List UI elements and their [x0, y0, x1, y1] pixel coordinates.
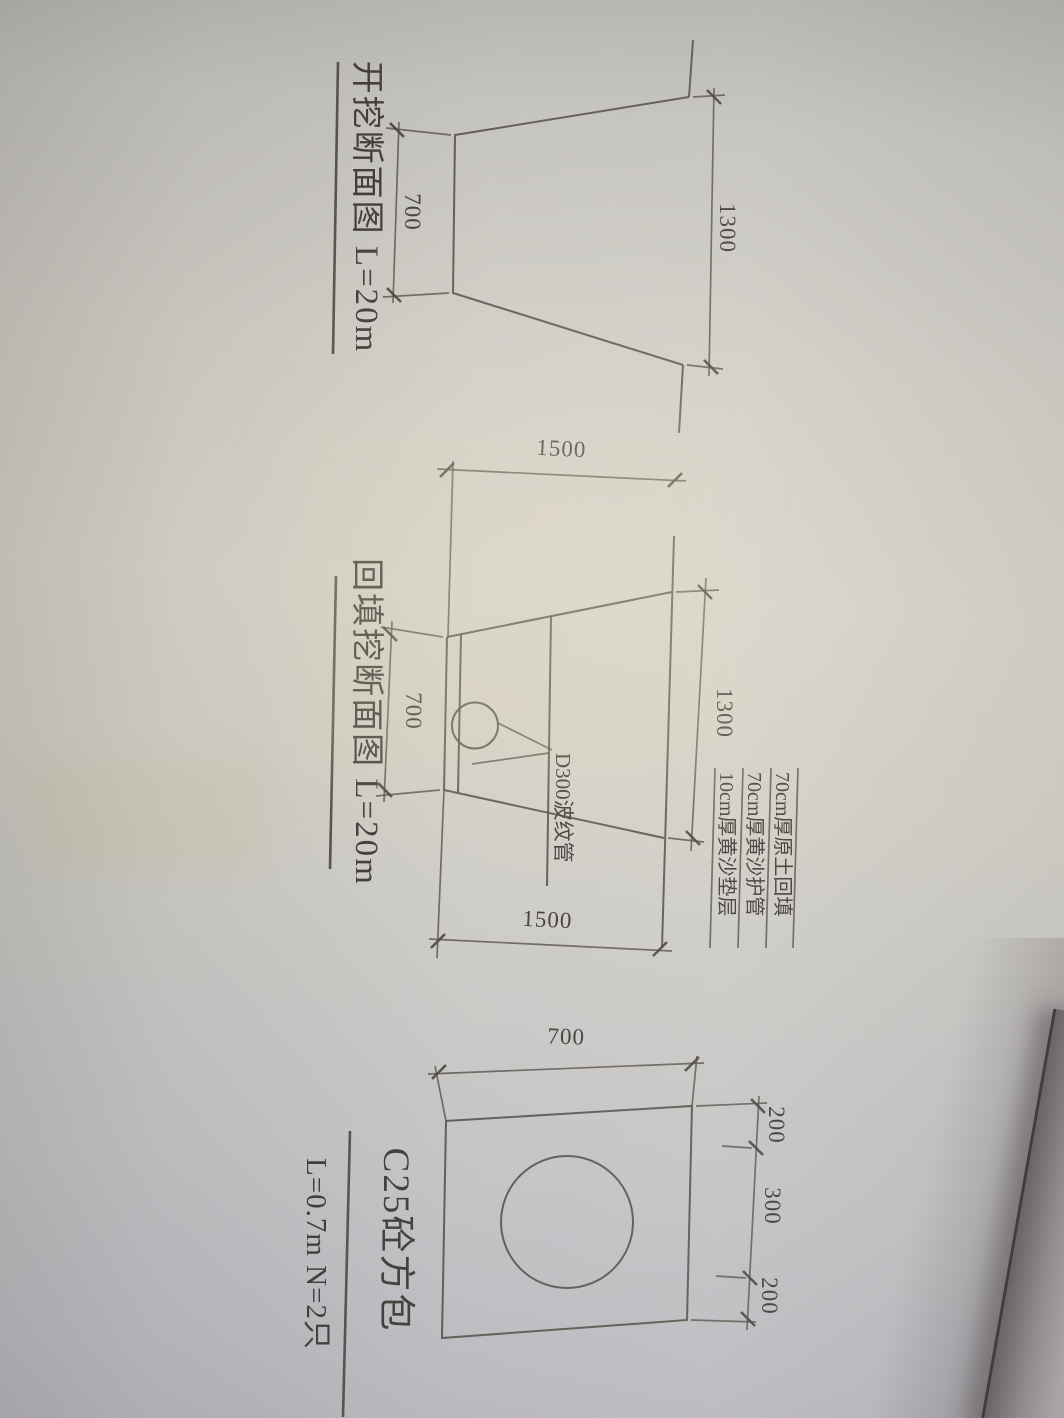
- caption-underline: [343, 1131, 350, 1417]
- caption-underline: [333, 62, 338, 354]
- dim-text-segment-left: 200: [764, 1106, 789, 1144]
- caption-excavation: 开挖断面图 L=20m: [348, 61, 385, 354]
- caption-backfill: 回填挖断面图 L=20m: [348, 558, 385, 886]
- dim-text-segment-right: 200: [757, 1277, 782, 1315]
- dim-text-depth-left: 1500: [536, 435, 587, 463]
- caption-casing-title: C25砼方包: [375, 1148, 417, 1333]
- trench-left-slope: [447, 592, 672, 637]
- drawing-sheet: 1300 700 开挖断面图 L=20m: [0, 0, 1064, 1418]
- dim-top-segments: 200 300 200: [691, 1096, 789, 1330]
- dim-text-height: 700: [547, 1023, 585, 1049]
- caption-casing-note: L=0.7m N=2只: [300, 1158, 332, 1350]
- casing-square: [442, 1106, 692, 1338]
- layer-label-sand-bedding: 10cm厚黄沙垫层: [715, 772, 738, 916]
- dim-text-depth-right: 1500: [522, 906, 573, 934]
- dim-depth-left: 1500: [437, 435, 686, 637]
- trench-bottom: [444, 637, 447, 790]
- layer-callout-table: 70cm厚原土回填 70cm厚黄沙护管 10cm厚黄沙垫层: [710, 768, 798, 948]
- dim-bottom-width: 700: [376, 621, 443, 802]
- drawing-canvas: 1300 700 开挖断面图 L=20m: [0, 0, 1064, 1418]
- pipe-leader-line-2: [472, 753, 549, 764]
- dim-text-top-width: 1300: [712, 688, 737, 738]
- layer-label-topsoil-backfill: 70cm厚原土回填: [771, 772, 794, 916]
- dim-text-top-width: 1300: [715, 203, 740, 253]
- dim-height: 700: [428, 1023, 704, 1121]
- dim-text-segment-middle: 300: [760, 1187, 785, 1225]
- caption-underline: [330, 576, 336, 869]
- surface-line: [662, 536, 674, 948]
- dim-bottom-width: 700: [383, 122, 451, 303]
- figure-concrete-casing: 700 200 300 200 C25砼方包: [300, 1023, 789, 1417]
- dim-text-bottom-width: 700: [400, 193, 425, 231]
- callout-rule-1: [793, 768, 798, 948]
- dim-top-width: 1300: [687, 88, 740, 376]
- pipe-label: D300波纹管: [551, 753, 575, 863]
- ground-line-left: [689, 40, 693, 97]
- trench-outline: [453, 97, 689, 365]
- layer-label-sand-protection: 70cm厚黄沙护管: [743, 772, 766, 916]
- figure-backfill-section: D300波纹管 1300 1500: [330, 435, 798, 958]
- construction-drawing-photo: 1300 700 开挖断面图 L=20m: [0, 0, 1064, 1418]
- pipe-leader-line: [498, 723, 552, 750]
- pipe-circle: [501, 1156, 633, 1288]
- figure-excavation-section: 1300 700 开挖断面图 L=20m: [333, 40, 740, 433]
- dim-text-bottom-width: 700: [401, 692, 426, 730]
- sand-bedding-line: [458, 634, 461, 793]
- ground-line-right: [679, 365, 683, 433]
